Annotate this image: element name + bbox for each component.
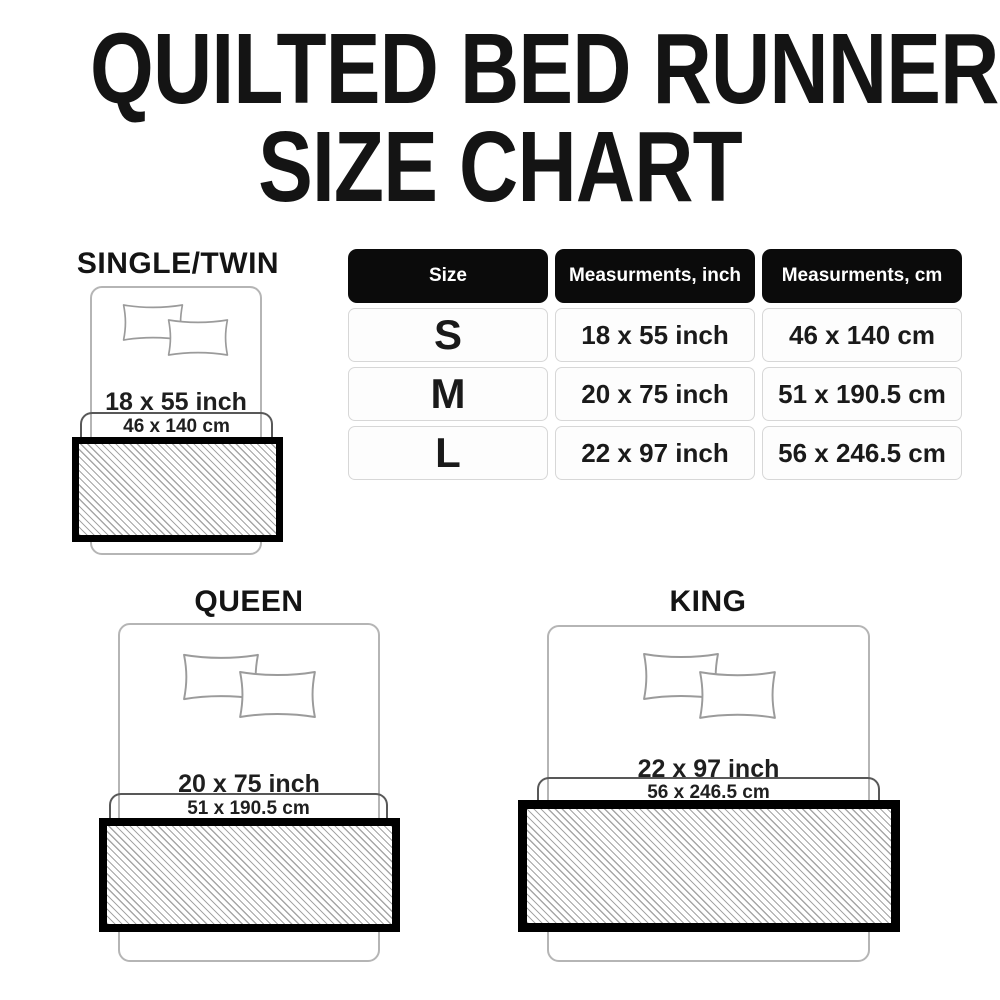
bed-runner-swatch <box>518 800 900 932</box>
table-cell-cm-m: 51 x 190.5 cm <box>762 367 962 421</box>
table-cell-size-l: L <box>348 426 548 480</box>
table-cell-cm-l: 56 x 246.5 cm <box>762 426 962 480</box>
table-header-cm: Measurments, cm <box>762 249 962 303</box>
diagram-title: SINGLE/TWIN <box>44 248 312 280</box>
table-cell-cm-s: 46 x 140 cm <box>762 308 962 362</box>
size-table: Size Measurments, inch Measurments, cm S… <box>348 249 962 480</box>
bed-runner-swatch <box>72 437 283 542</box>
diagram-king: KING 22 x 97 inch 56 x 246.5 cm <box>505 586 911 964</box>
diagram-single-twin: SINGLE/TWIN 18 x 55 inch 46 x 140 cm <box>44 248 312 558</box>
size-label-cm: 51 x 190.5 cm <box>109 798 388 820</box>
size-label-cm: 46 x 140 cm <box>80 416 273 438</box>
table-header-inch: Measurments, inch <box>555 249 755 303</box>
pillow-icon <box>693 663 782 727</box>
table-cell-inch-l: 22 x 97 inch <box>555 426 755 480</box>
diagram-title: KING <box>505 586 911 618</box>
table-cell-inch-s: 18 x 55 inch <box>555 308 755 362</box>
pillow-icon <box>233 663 322 726</box>
page-title-line1: QUILTED BED RUNNER <box>90 20 910 118</box>
bed-runner-swatch <box>99 818 400 932</box>
diagram-queen: QUEEN 20 x 75 inch 51 x 190.5 cm <box>95 586 403 964</box>
table-cell-size-s: S <box>348 308 548 362</box>
page-title: QUILTED BED RUNNER SIZE CHART <box>0 20 1000 216</box>
diagram-title: QUEEN <box>95 586 403 618</box>
table-cell-size-m: M <box>348 367 548 421</box>
pillow-icon <box>163 313 233 362</box>
page-title-line2: SIZE CHART <box>90 118 910 216</box>
table-cell-inch-m: 20 x 75 inch <box>555 367 755 421</box>
table-header-size: Size <box>348 249 548 303</box>
